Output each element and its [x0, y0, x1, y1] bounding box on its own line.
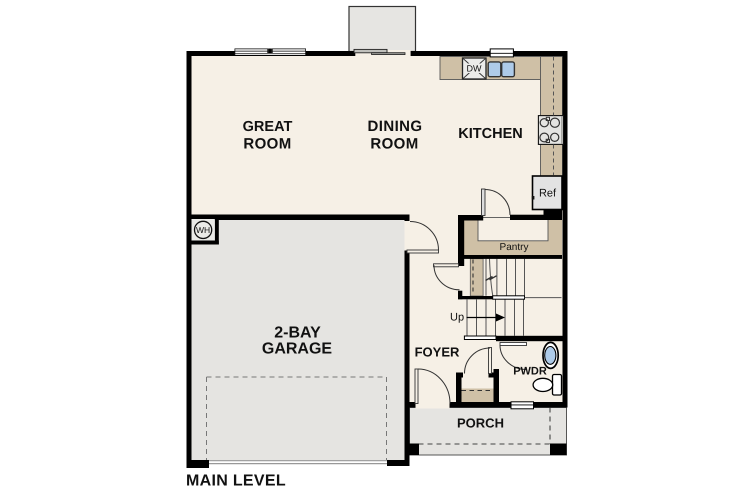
svg-text:MAIN LEVEL: MAIN LEVEL	[186, 473, 286, 490]
svg-text:Pantry: Pantry	[500, 242, 529, 253]
svg-text:FOYER: FOYER	[415, 345, 460, 360]
svg-text:DINING: DINING	[368, 118, 423, 135]
svg-text:2-BAY: 2-BAY	[274, 325, 321, 342]
svg-text:GARAGE: GARAGE	[262, 341, 333, 358]
svg-text:ROOM: ROOM	[243, 136, 291, 153]
svg-text:WH: WH	[196, 225, 210, 235]
svg-text:GREAT: GREAT	[243, 119, 293, 135]
svg-text:DW: DW	[467, 64, 482, 74]
svg-text:PORCH: PORCH	[457, 416, 504, 431]
svg-text:ROOM: ROOM	[370, 136, 418, 153]
svg-text:PWDR: PWDR	[513, 366, 547, 378]
svg-text:KITCHEN: KITCHEN	[458, 126, 522, 142]
svg-text:Up: Up	[450, 312, 464, 324]
svg-text:Ref: Ref	[539, 188, 557, 200]
